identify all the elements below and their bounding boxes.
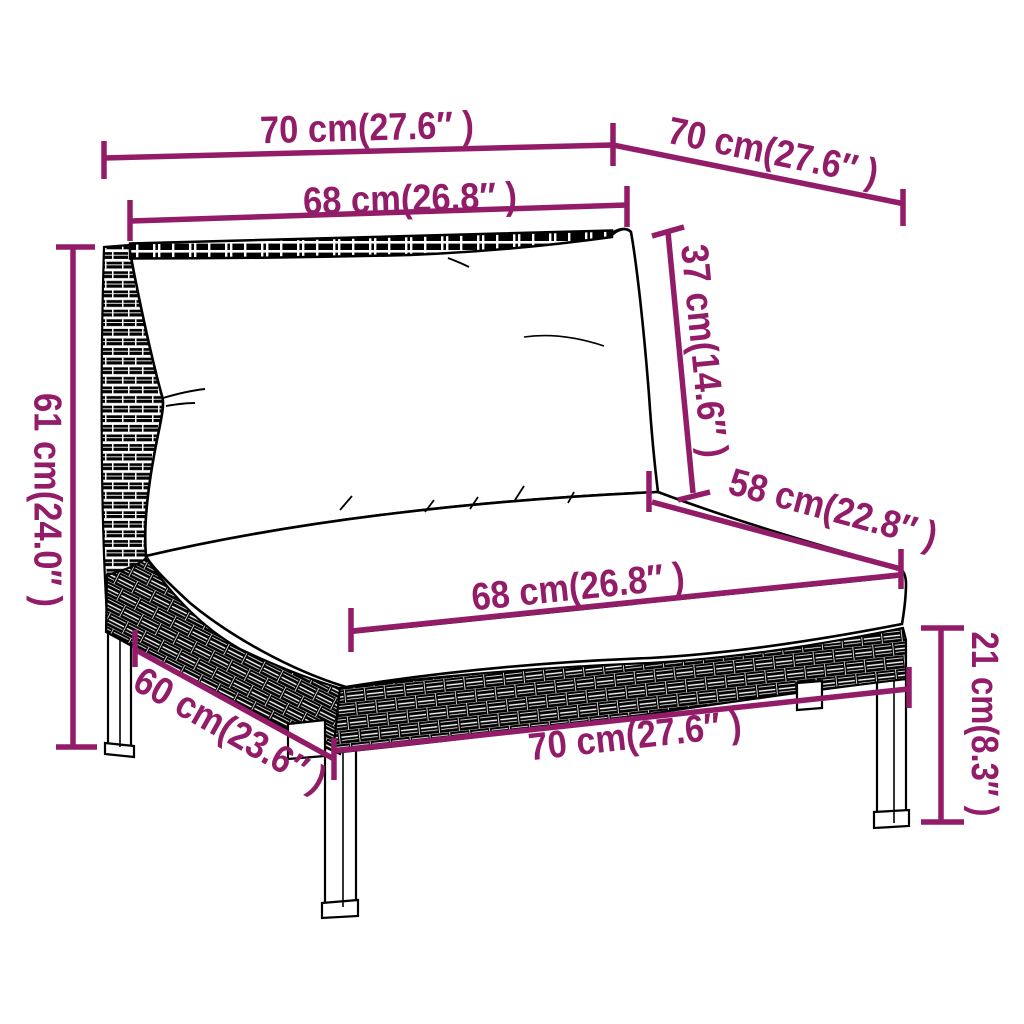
svg-text:21 cm(8.3″ ): 21 cm(8.3″ ) <box>963 632 1005 817</box>
svg-text:70 cm(27.6″ ): 70 cm(27.6″ ) <box>259 104 474 153</box>
svg-text:61 cm(24.0″ ): 61 cm(24.0″ ) <box>26 393 69 607</box>
svg-text:68 cm(26.8″ ): 68 cm(26.8″ ) <box>302 175 517 224</box>
